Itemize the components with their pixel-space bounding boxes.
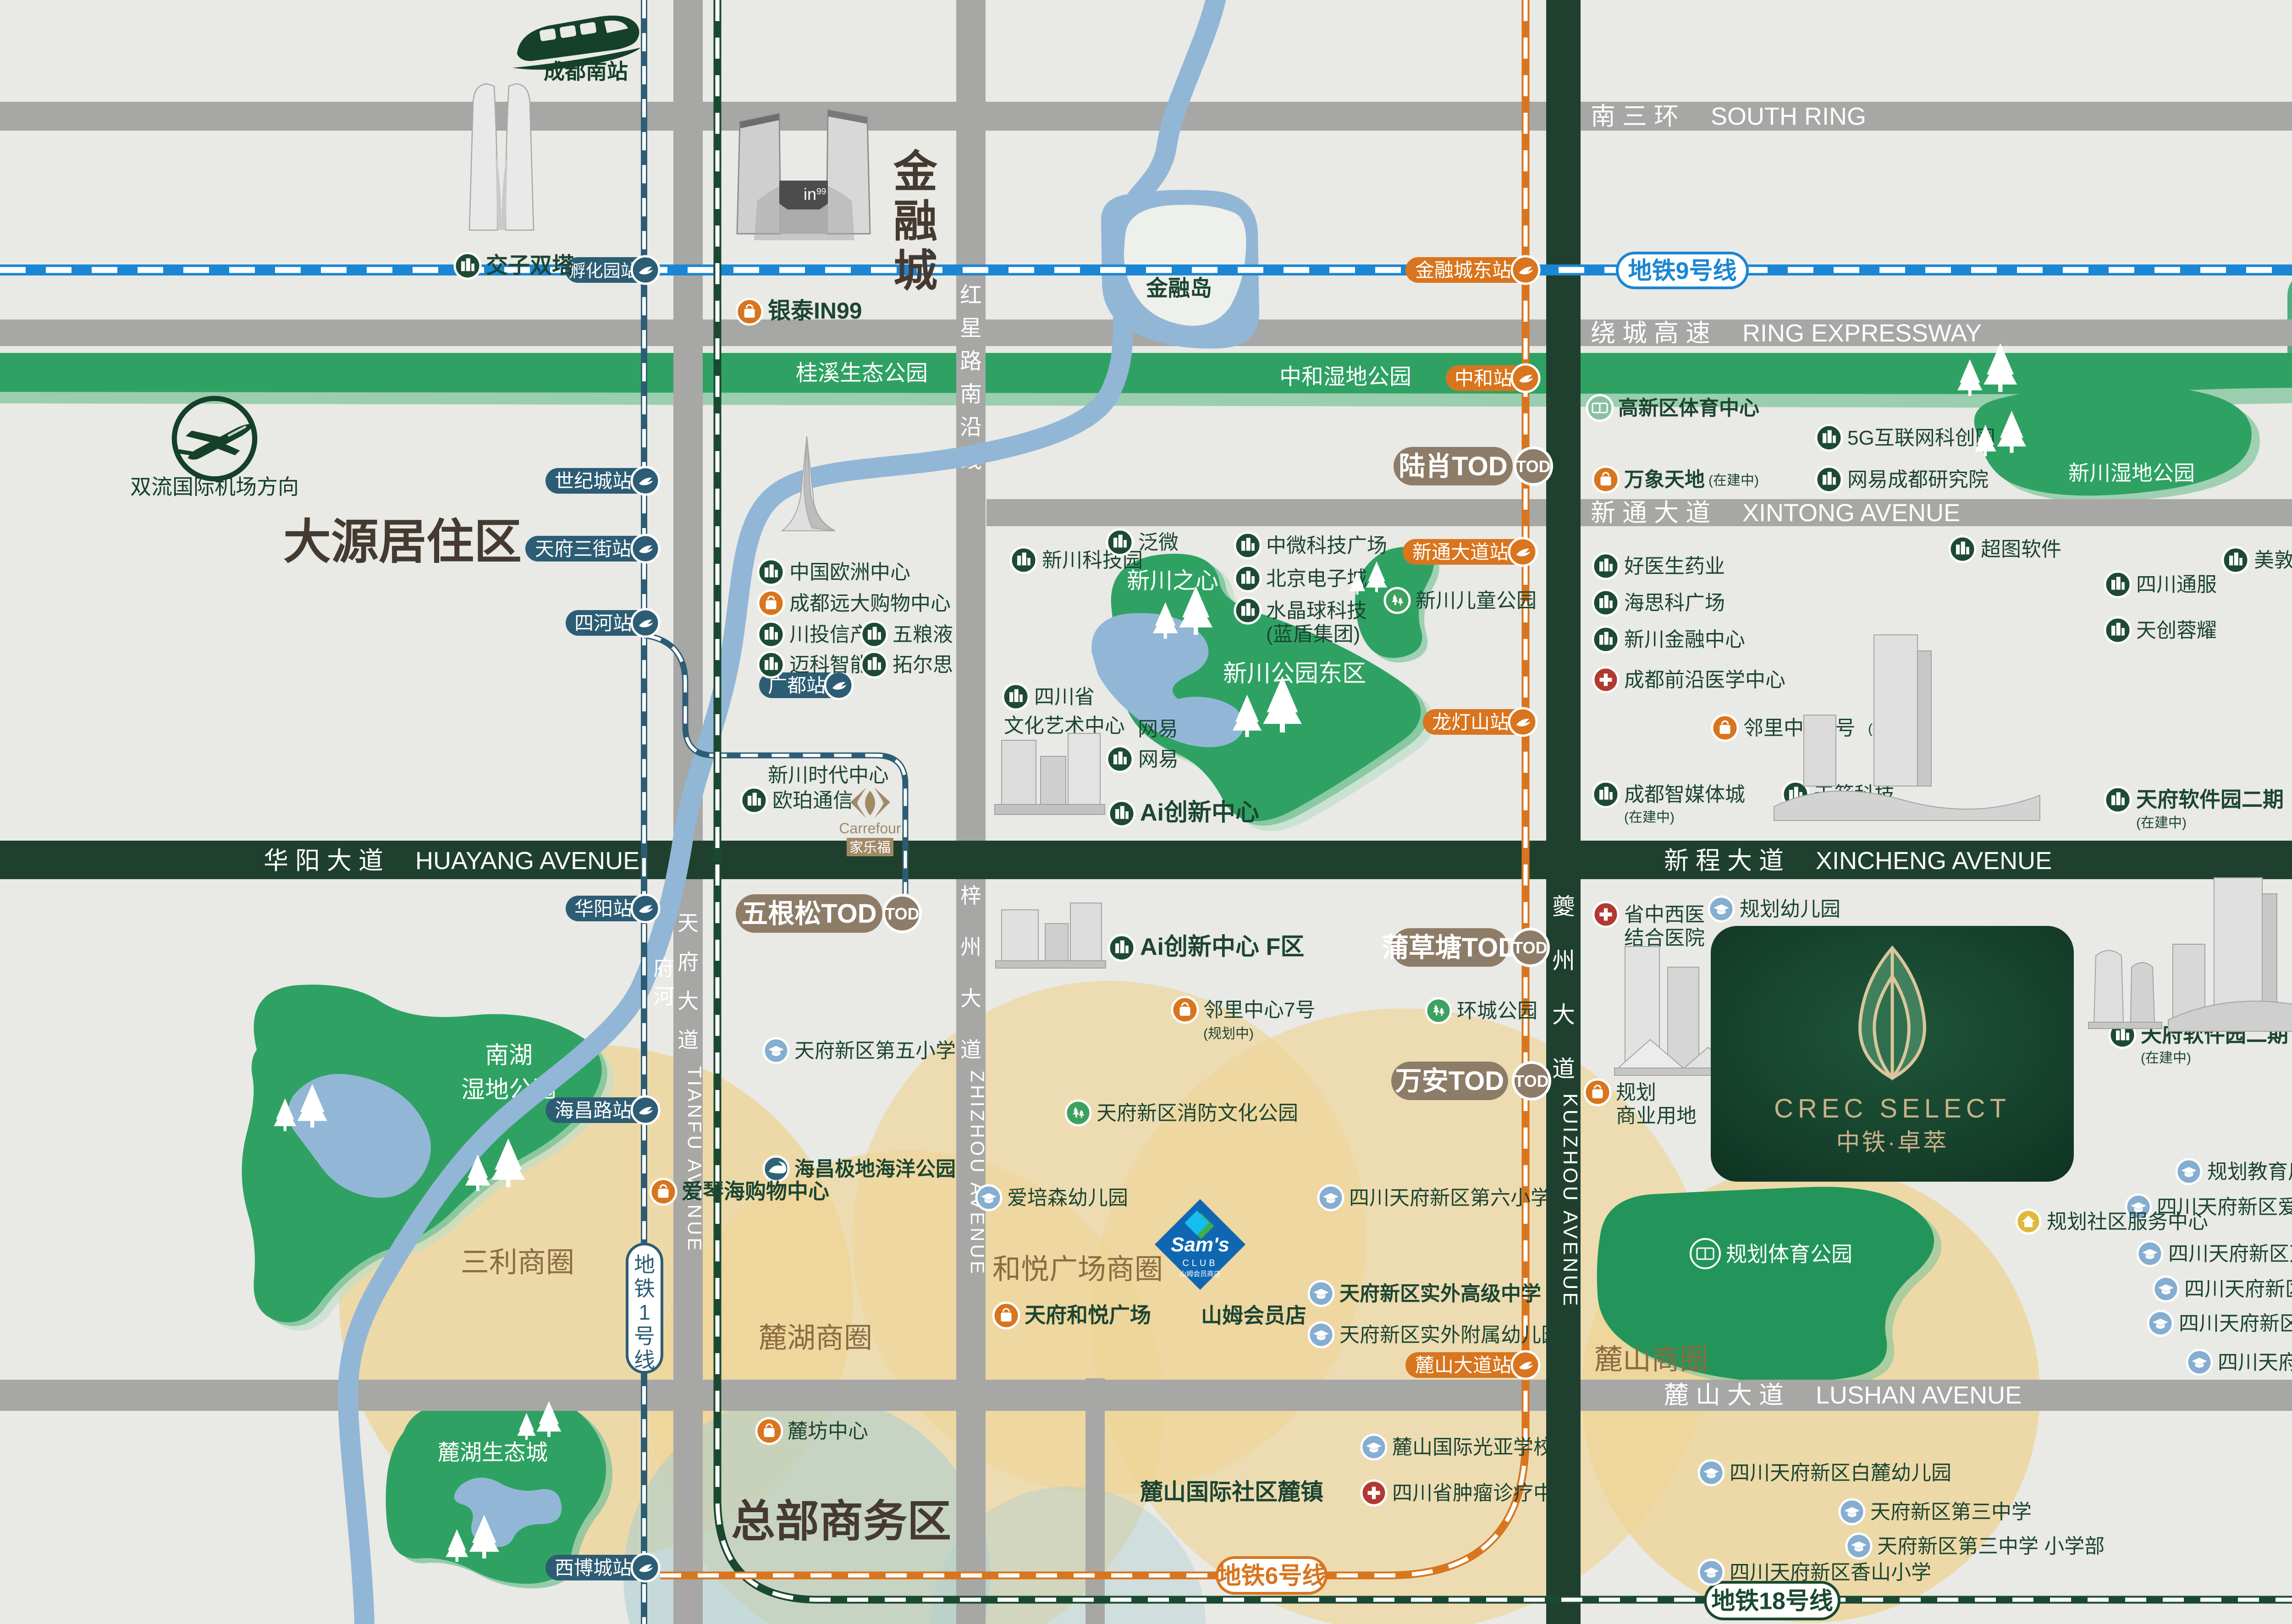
- svg-text:文化艺术中心: 文化艺术中心: [1004, 715, 1125, 737]
- svg-text:州: 州: [1552, 948, 1575, 974]
- svg-text:麓山国际社区麓镇: 麓山国际社区麓镇: [1140, 1479, 1323, 1505]
- svg-text:道: 道: [1552, 1056, 1575, 1082]
- svg-text:网易: 网易: [1138, 748, 1179, 771]
- svg-text:Sam's: Sam's: [1171, 1233, 1229, 1256]
- svg-text:海思科广场: 海思科广场: [1624, 592, 1725, 614]
- svg-text:(在建中): (在建中): [1708, 473, 1759, 488]
- svg-text:成都远大购物中心: 成都远大购物中心: [789, 592, 951, 615]
- svg-text:天府软件园二期: 天府软件园二期: [2136, 787, 2284, 811]
- svg-text:南 三 环SOUTH RING: 南 三 环SOUTH RING: [1591, 103, 1866, 130]
- svg-text:麓山大道站: 麓山大道站: [1415, 1354, 1511, 1376]
- svg-text:星: 星: [960, 316, 982, 341]
- svg-text:府: 府: [678, 950, 699, 974]
- svg-text:美敦力: 美敦力: [2254, 549, 2292, 572]
- svg-text:四河站: 四河站: [574, 612, 632, 634]
- svg-text:新 程 大 道XINCHENG AVENUE: 新 程 大 道XINCHENG AVENUE: [1664, 847, 2052, 875]
- svg-text:ZHIZHOU AVENUE: ZHIZHOU AVENUE: [967, 1070, 988, 1277]
- svg-text:路: 路: [960, 349, 982, 374]
- svg-text:(在建中): (在建中): [1624, 810, 1675, 825]
- svg-text:四川天府新区第六小学: 四川天府新区第六小学: [1349, 1187, 1551, 1209]
- svg-text:新川之心: 新川之心: [1127, 568, 1218, 594]
- svg-text:五根松TOD: 五根松TOD: [741, 899, 876, 929]
- svg-text:天府新区第三中学: 天府新区第三中学: [1870, 1501, 2032, 1523]
- svg-text:新通大道站: 新通大道站: [1412, 541, 1509, 563]
- svg-text:四川省: 四川省: [1034, 686, 1095, 708]
- svg-text:夔: 夔: [1552, 894, 1575, 919]
- svg-text:省中西医: 省中西医: [1624, 903, 1705, 926]
- svg-text:华 阳 大 道HUAYANG AVENUE: 华 阳 大 道HUAYANG AVENUE: [264, 847, 639, 875]
- svg-text:道: 道: [678, 1028, 699, 1052]
- svg-text:结合医院: 结合医院: [1624, 927, 1705, 949]
- svg-text:新川儿童公园: 新川儿童公园: [1416, 589, 1537, 612]
- svg-text:四川天府新区白麓幼儿园: 四川天府新区白麓幼儿园: [2218, 1351, 2292, 1374]
- svg-text:规划教育用地: 规划教育用地: [2207, 1161, 2292, 1183]
- svg-text:中国欧洲中心: 中国欧洲中心: [789, 561, 910, 584]
- svg-text:四川天府新区万安小学: 四川天府新区万安小学: [2184, 1278, 2292, 1300]
- svg-text:州: 州: [960, 935, 981, 959]
- svg-text:中和湿地公园: 中和湿地公园: [1279, 365, 1411, 389]
- svg-text:桂溪生态公园: 桂溪生态公园: [796, 361, 928, 385]
- svg-text:金融城东站: 金融城东站: [1415, 259, 1511, 281]
- svg-text:TOD: TOD: [1514, 1072, 1548, 1090]
- svg-text:商业用地: 商业用地: [1616, 1105, 1697, 1127]
- svg-text:(在建中): (在建中): [2141, 1051, 2191, 1066]
- svg-text:中铁·卓萃: 中铁·卓萃: [1836, 1129, 1948, 1156]
- svg-text:5G互联网科创园: 5G互联网科创园: [1847, 427, 1995, 449]
- svg-text:水晶球科技: 水晶球科技: [1266, 600, 1367, 622]
- svg-text:四川天府新区香山小学: 四川天府新区香山小学: [1730, 1561, 1931, 1584]
- svg-text:铁: 铁: [634, 1277, 655, 1300]
- svg-text:网易成都研究院: 网易成都研究院: [1847, 468, 1989, 491]
- svg-text:海昌路站: 海昌路站: [555, 1100, 632, 1121]
- svg-text:总部商务区: 总部商务区: [731, 1497, 951, 1546]
- svg-text:1: 1: [639, 1300, 650, 1324]
- svg-text:府: 府: [653, 956, 674, 980]
- svg-text:麓 山 大 道LUSHAN AVENUE: 麓 山 大 道LUSHAN AVENUE: [1664, 1382, 2022, 1409]
- svg-text:海昌极地海洋公园: 海昌极地海洋公园: [794, 1158, 956, 1180]
- svg-text:新 通 大 道XINTONG AVENUE: 新 通 大 道XINTONG AVENUE: [1591, 499, 1960, 527]
- svg-text:好医生药业: 好医生药业: [1624, 555, 1725, 578]
- svg-text:四川通服: 四川通服: [2136, 573, 2217, 596]
- svg-text:成都前沿医学中心: 成都前沿医学中心: [1624, 669, 1785, 691]
- svg-text:TOD: TOD: [1516, 457, 1550, 476]
- svg-text:交子双塔: 交子双塔: [486, 253, 574, 278]
- svg-text:新川金融中心: 新川金融中心: [1624, 628, 1745, 651]
- svg-text:四川天府新区白麓幼儿园: 四川天府新区白麓幼儿园: [1730, 1462, 1951, 1484]
- svg-text:中和站: 中和站: [1455, 368, 1512, 389]
- svg-text:河: 河: [653, 985, 674, 1008]
- svg-text:号: 号: [634, 1324, 655, 1348]
- svg-text:北京电子城: 北京电子城: [1266, 567, 1367, 590]
- svg-text:高新区体育中心: 高新区体育中心: [1618, 397, 1759, 419]
- svg-text:Carrefour: Carrefour: [839, 820, 901, 837]
- svg-text:万象天地: 万象天地: [1624, 468, 1705, 491]
- svg-text:天府新区实外高级中学: 天府新区实外高级中学: [1339, 1283, 1541, 1305]
- svg-text:双流国际机场方向: 双流国际机场方向: [130, 475, 299, 499]
- svg-text:(在建中): (在建中): [2136, 815, 2187, 831]
- svg-text:孵化园站: 孵化园站: [568, 262, 638, 281]
- svg-text:地铁6号线: 地铁6号线: [1218, 1563, 1326, 1590]
- svg-text:红: 红: [960, 283, 982, 308]
- svg-text:麓坊中心: 麓坊中心: [788, 1420, 868, 1442]
- svg-text:世纪城站: 世纪城站: [555, 470, 632, 492]
- svg-text:万安TOD: 万安TOD: [1395, 1066, 1504, 1096]
- svg-text:环城公园: 环城公园: [1457, 1000, 1537, 1022]
- svg-text:TOD: TOD: [885, 904, 919, 923]
- svg-text:金融岛: 金融岛: [1146, 276, 1212, 301]
- svg-text:银泰IN99: 银泰IN99: [768, 298, 862, 324]
- svg-text:天府和悦广场: 天府和悦广场: [1025, 1303, 1151, 1327]
- svg-text:麓湖生态城: 麓湖生态城: [438, 1441, 548, 1465]
- svg-text:邻里中心5号: 邻里中心5号: [1743, 717, 1855, 739]
- svg-text:道: 道: [960, 1038, 981, 1062]
- svg-text:四川省肿瘤诊疗中心: 四川省肿瘤诊疗中心: [1392, 1482, 1574, 1504]
- svg-text:天创蓉耀: 天创蓉耀: [2136, 619, 2217, 642]
- svg-text:和悦广场商圈: 和悦广场商圈: [992, 1254, 1163, 1285]
- svg-text:CLUB: CLUB: [1182, 1258, 1218, 1268]
- svg-text:邻里中心7号: 邻里中心7号: [1203, 999, 1315, 1021]
- svg-text:大源居住区: 大源居住区: [283, 516, 522, 569]
- svg-text:龙灯山站: 龙灯山站: [1432, 711, 1509, 733]
- svg-text:五粮液: 五粮液: [893, 623, 953, 646]
- svg-text:线: 线: [634, 1348, 655, 1372]
- svg-text:CREC SELECT: CREC SELECT: [1774, 1094, 2011, 1123]
- svg-text:梓: 梓: [960, 884, 981, 908]
- svg-text:三利商圈: 三利商圈: [461, 1247, 574, 1278]
- svg-text:地: 地: [634, 1253, 655, 1277]
- svg-text:陆肖TOD: 陆肖TOD: [1399, 451, 1507, 481]
- svg-text:沿: 沿: [960, 415, 982, 440]
- svg-text:Ai创新中心: Ai创新中心: [1140, 799, 1259, 826]
- svg-text:拓尔思: 拓尔思: [893, 654, 953, 676]
- svg-text:融: 融: [893, 197, 937, 246]
- svg-text:TOD: TOD: [1513, 938, 1547, 957]
- svg-text:欧珀通信: 欧珀通信: [772, 789, 853, 812]
- svg-text:天府新区第三中学 小学部: 天府新区第三中学 小学部: [1877, 1535, 2105, 1558]
- svg-text:大: 大: [678, 989, 699, 1013]
- svg-text:山姆会员店: 山姆会员店: [1201, 1304, 1306, 1327]
- svg-text:南: 南: [960, 382, 982, 407]
- svg-text:四川天府新区万安幼儿园: 四川天府新区万安幼儿园: [2179, 1312, 2292, 1335]
- svg-text:四川天府新区万安中学: 四川天府新区万安中学: [2168, 1243, 2292, 1265]
- svg-text:天府新区实外附属幼儿园: 天府新区实外附属幼儿园: [1339, 1324, 1561, 1346]
- svg-text:成都南站: 成都南站: [544, 60, 628, 83]
- svg-text:规划体育公园: 规划体育公园: [1726, 1242, 1852, 1266]
- svg-text:绕 城 高 速RING EXPRESSWAY: 绕 城 高 速RING EXPRESSWAY: [1591, 319, 1982, 347]
- svg-text:大: 大: [1552, 1002, 1575, 1028]
- svg-text:广都站: 广都站: [768, 675, 826, 696]
- svg-text:天府新区第五小学: 天府新区第五小学: [794, 1040, 956, 1062]
- svg-text:迈科智能: 迈科智能: [789, 654, 870, 676]
- svg-text:网易: 网易: [1138, 718, 1178, 740]
- svg-text:规划社区服务中心: 规划社区服务中心: [2047, 1211, 2208, 1233]
- svg-text:山姆会员商店: 山姆会员商店: [1179, 1270, 1221, 1278]
- svg-text:中微科技广场: 中微科技广场: [1266, 534, 1387, 557]
- svg-text:超图软件: 超图软件: [1981, 538, 2061, 561]
- svg-text:天府三街站: 天府三街站: [535, 538, 631, 560]
- svg-text:天: 天: [678, 911, 699, 935]
- svg-text:城: 城: [893, 247, 937, 296]
- svg-text:(蓝盾集团): (蓝盾集团): [1266, 623, 1360, 645]
- svg-text:新川湿地公园: 新川湿地公园: [2068, 461, 2195, 485]
- svg-text:规划幼儿园: 规划幼儿园: [1740, 898, 1840, 920]
- svg-text:(规划中): (规划中): [1203, 1026, 1254, 1041]
- svg-text:KUIZHOU AVENUE: KUIZHOU AVENUE: [1559, 1093, 1581, 1308]
- svg-text:麓山国际光亚学校: 麓山国际光亚学校: [1392, 1436, 1554, 1459]
- svg-text:华阳站: 华阳站: [574, 898, 632, 919]
- svg-text:麓湖商圈: 麓湖商圈: [759, 1322, 872, 1354]
- svg-text:麓山商圈: 麓山商圈: [1594, 1344, 1708, 1376]
- svg-text:Ai创新中心 F区: Ai创新中心 F区: [1140, 934, 1304, 960]
- svg-text:西博城站: 西博城站: [555, 1557, 632, 1579]
- svg-text:规划: 规划: [1616, 1081, 1656, 1104]
- svg-text:蒲草塘TOD: 蒲草塘TOD: [1382, 933, 1517, 963]
- svg-text:成都智媒体城: 成都智媒体城: [1624, 783, 1745, 806]
- svg-text:地铁18号线: 地铁18号线: [1711, 1588, 1833, 1615]
- svg-text:新川时代中心: 新川时代中心: [768, 764, 889, 787]
- svg-text:南湖: 南湖: [485, 1042, 533, 1069]
- svg-text:泛微: 泛微: [1138, 531, 1179, 554]
- svg-text:家乐福: 家乐福: [849, 840, 891, 855]
- svg-text:天府新区消防文化公园: 天府新区消防文化公园: [1096, 1102, 1298, 1124]
- svg-text:爱琴海购物中心: 爱琴海购物中心: [682, 1179, 829, 1203]
- svg-text:地铁9号线: 地铁9号线: [1628, 258, 1737, 285]
- svg-text:大: 大: [960, 986, 981, 1010]
- svg-text:爱培森幼儿园: 爱培森幼儿园: [1007, 1187, 1128, 1209]
- svg-text:川投信产: 川投信产: [789, 623, 870, 646]
- svg-text:TIANFU AVENUE: TIANFU AVENUE: [684, 1066, 705, 1254]
- svg-text:金: 金: [893, 148, 938, 197]
- svg-text:新川公园东区: 新川公园东区: [1223, 661, 1366, 687]
